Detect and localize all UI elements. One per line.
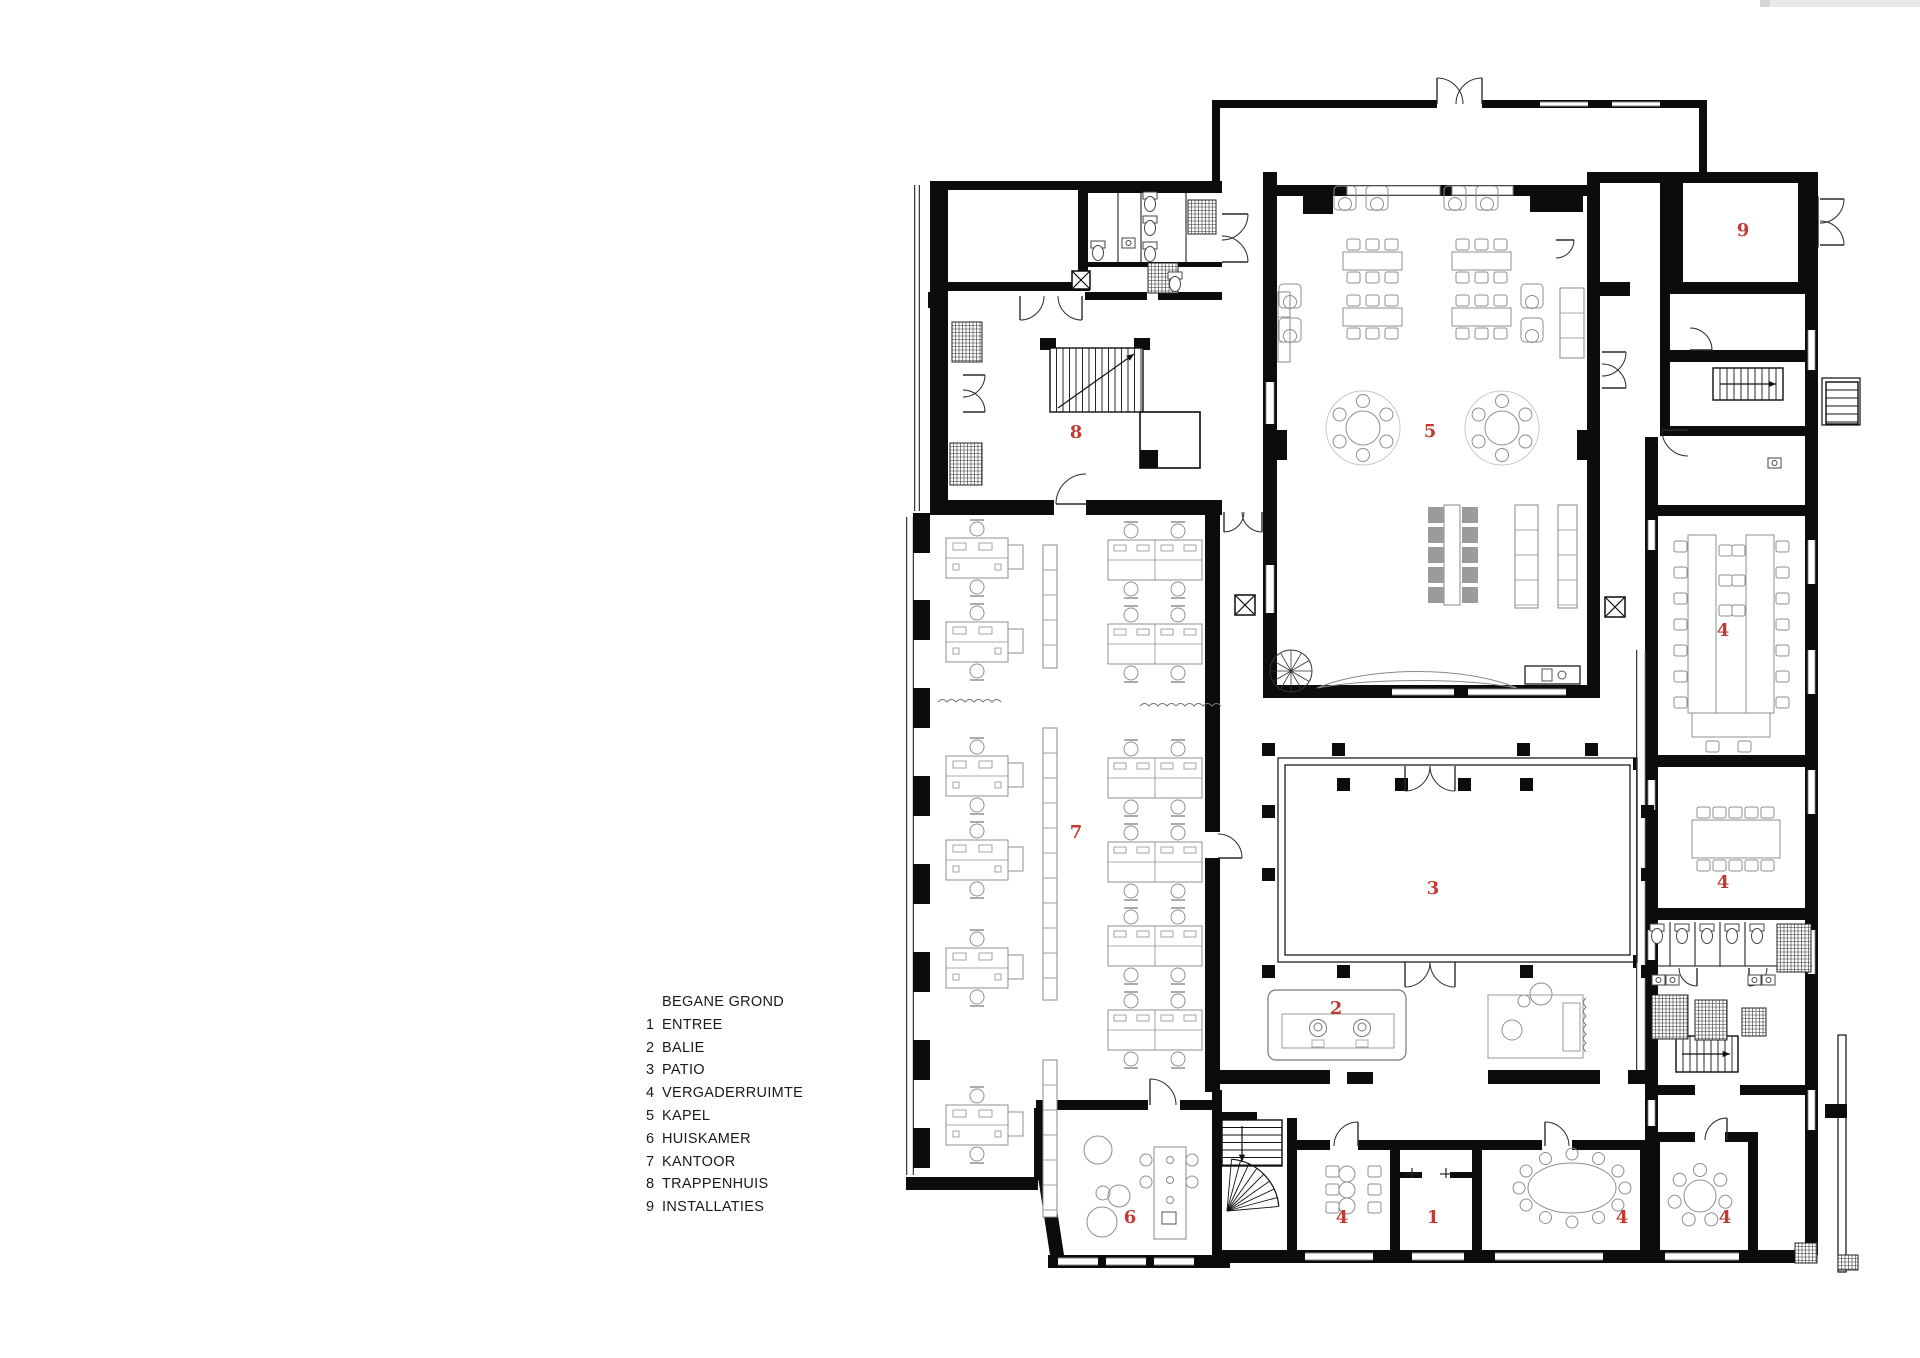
room-number-label: 3 <box>1427 878 1440 899</box>
room-number-label: 1 <box>1427 1207 1440 1228</box>
room-number-label: 9 <box>1737 220 1750 241</box>
room-number-label: 4 <box>1336 1207 1349 1228</box>
legend-item: 8TRAPPENHUIS <box>646 1173 803 1196</box>
legend-title: BEGANE GROND <box>662 991 803 1014</box>
floor-plan: 8594734264144 <box>0 0 1920 1358</box>
room-number-label: 4 <box>1616 1207 1629 1228</box>
legend-item: 4VERGADERRUIMTE <box>646 1082 803 1105</box>
legend-items: 1ENTREE2BALIE3PATIO4VERGADERRUIMTE5KAPEL… <box>646 1014 803 1219</box>
legend-item: 7KANTOOR <box>646 1151 803 1174</box>
legend-item: 3PATIO <box>646 1059 803 1082</box>
scrollbar-tip <box>1760 0 1770 7</box>
room-number-label: 6 <box>1124 1207 1137 1228</box>
room-number-label: 4 <box>1719 1207 1732 1228</box>
legend-item: 2BALIE <box>646 1037 803 1060</box>
legend-item: 9INSTALLATIES <box>646 1196 803 1219</box>
room-number-label: 2 <box>1330 998 1343 1019</box>
legend-item: 6HUISKAMER <box>646 1128 803 1151</box>
room-number-label: 7 <box>1070 822 1083 843</box>
room-number-label: 4 <box>1717 872 1730 893</box>
room-number-label: 8 <box>1070 422 1083 443</box>
room-number-label: 5 <box>1424 421 1437 442</box>
legend-item: 1ENTREE <box>646 1014 803 1037</box>
room-number-label: 4 <box>1717 620 1730 641</box>
legend: BEGANE GROND 1ENTREE2BALIE3PATIO4VERGADE… <box>646 991 803 1219</box>
page: 8594734264144 BEGANE GROND 1ENTREE2BALIE… <box>0 0 1920 1358</box>
legend-item: 5KAPEL <box>646 1105 803 1128</box>
scrollbar[interactable] <box>1760 0 1920 7</box>
